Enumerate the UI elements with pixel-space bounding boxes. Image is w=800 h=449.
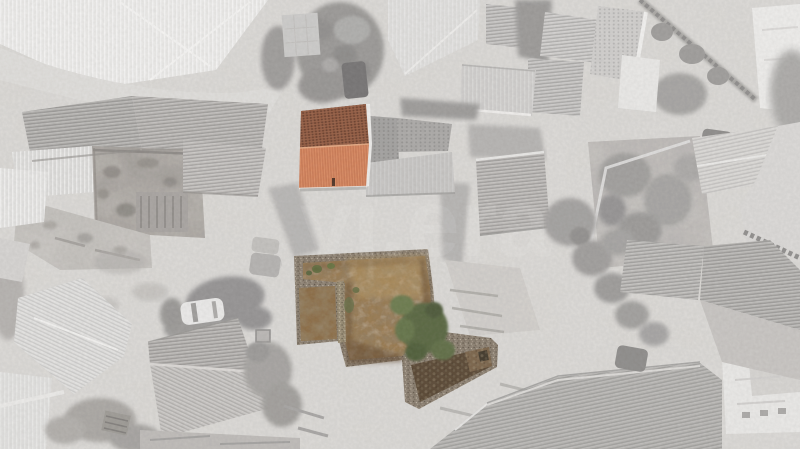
svg-text:vi.era: vi.era (300, 170, 551, 277)
